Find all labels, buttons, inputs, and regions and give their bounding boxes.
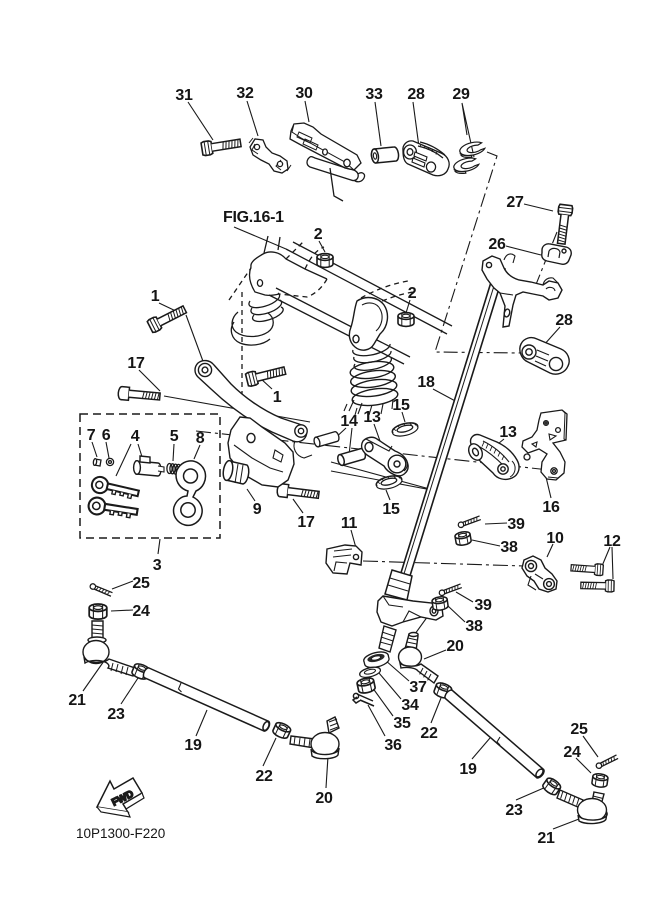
svg-text:18: 18 — [417, 374, 435, 391]
svg-text:2: 2 — [408, 285, 417, 302]
svg-text:27: 27 — [506, 194, 524, 211]
svg-text:28: 28 — [555, 312, 573, 329]
svg-text:1: 1 — [273, 389, 282, 406]
svg-text:7: 7 — [87, 427, 96, 444]
svg-text:25: 25 — [570, 721, 588, 738]
svg-text:33: 33 — [365, 86, 383, 103]
svg-text:2: 2 — [314, 226, 323, 243]
svg-text:FIG.16-1: FIG.16-1 — [223, 209, 284, 226]
svg-text:39: 39 — [474, 597, 492, 614]
svg-text:19: 19 — [459, 761, 477, 778]
svg-text:31: 31 — [175, 87, 193, 104]
svg-text:4: 4 — [131, 428, 140, 445]
svg-text:20: 20 — [446, 638, 464, 655]
svg-text:11: 11 — [341, 515, 358, 532]
svg-text:9: 9 — [253, 501, 262, 518]
svg-text:24: 24 — [563, 744, 581, 761]
svg-text:22: 22 — [255, 768, 273, 785]
svg-text:6: 6 — [102, 427, 111, 444]
svg-text:17: 17 — [297, 514, 315, 531]
svg-text:32: 32 — [236, 85, 254, 102]
svg-text:28: 28 — [407, 86, 425, 103]
svg-text:25: 25 — [132, 575, 150, 592]
svg-text:36: 36 — [384, 737, 402, 754]
svg-text:10P1300-F220: 10P1300-F220 — [76, 826, 165, 841]
svg-text:17: 17 — [127, 355, 145, 372]
svg-text:13: 13 — [363, 409, 381, 426]
svg-text:30: 30 — [295, 85, 313, 102]
svg-text:38: 38 — [465, 618, 483, 635]
svg-text:10: 10 — [546, 530, 564, 547]
svg-text:15: 15 — [392, 397, 410, 414]
svg-text:21: 21 — [68, 692, 86, 709]
svg-text:24: 24 — [132, 603, 150, 620]
svg-text:16: 16 — [542, 499, 560, 516]
svg-text:37: 37 — [409, 679, 427, 696]
svg-text:3: 3 — [153, 557, 162, 574]
svg-text:38: 38 — [500, 539, 518, 556]
svg-text:23: 23 — [107, 706, 125, 723]
svg-text:15: 15 — [382, 501, 400, 518]
svg-text:39: 39 — [507, 516, 525, 533]
svg-text:23: 23 — [505, 802, 523, 819]
svg-text:21: 21 — [537, 830, 555, 847]
svg-text:26: 26 — [488, 236, 506, 253]
svg-text:34: 34 — [401, 697, 419, 714]
svg-text:13: 13 — [499, 424, 517, 441]
svg-text:22: 22 — [420, 725, 438, 742]
svg-text:29: 29 — [452, 86, 470, 103]
svg-text:8: 8 — [196, 430, 205, 447]
svg-text:1: 1 — [151, 288, 160, 305]
svg-text:35: 35 — [393, 715, 411, 732]
svg-text:5: 5 — [170, 428, 179, 445]
svg-text:14: 14 — [340, 413, 358, 430]
svg-text:20: 20 — [315, 790, 333, 807]
svg-text:12: 12 — [603, 533, 621, 550]
svg-text:19: 19 — [184, 737, 202, 754]
